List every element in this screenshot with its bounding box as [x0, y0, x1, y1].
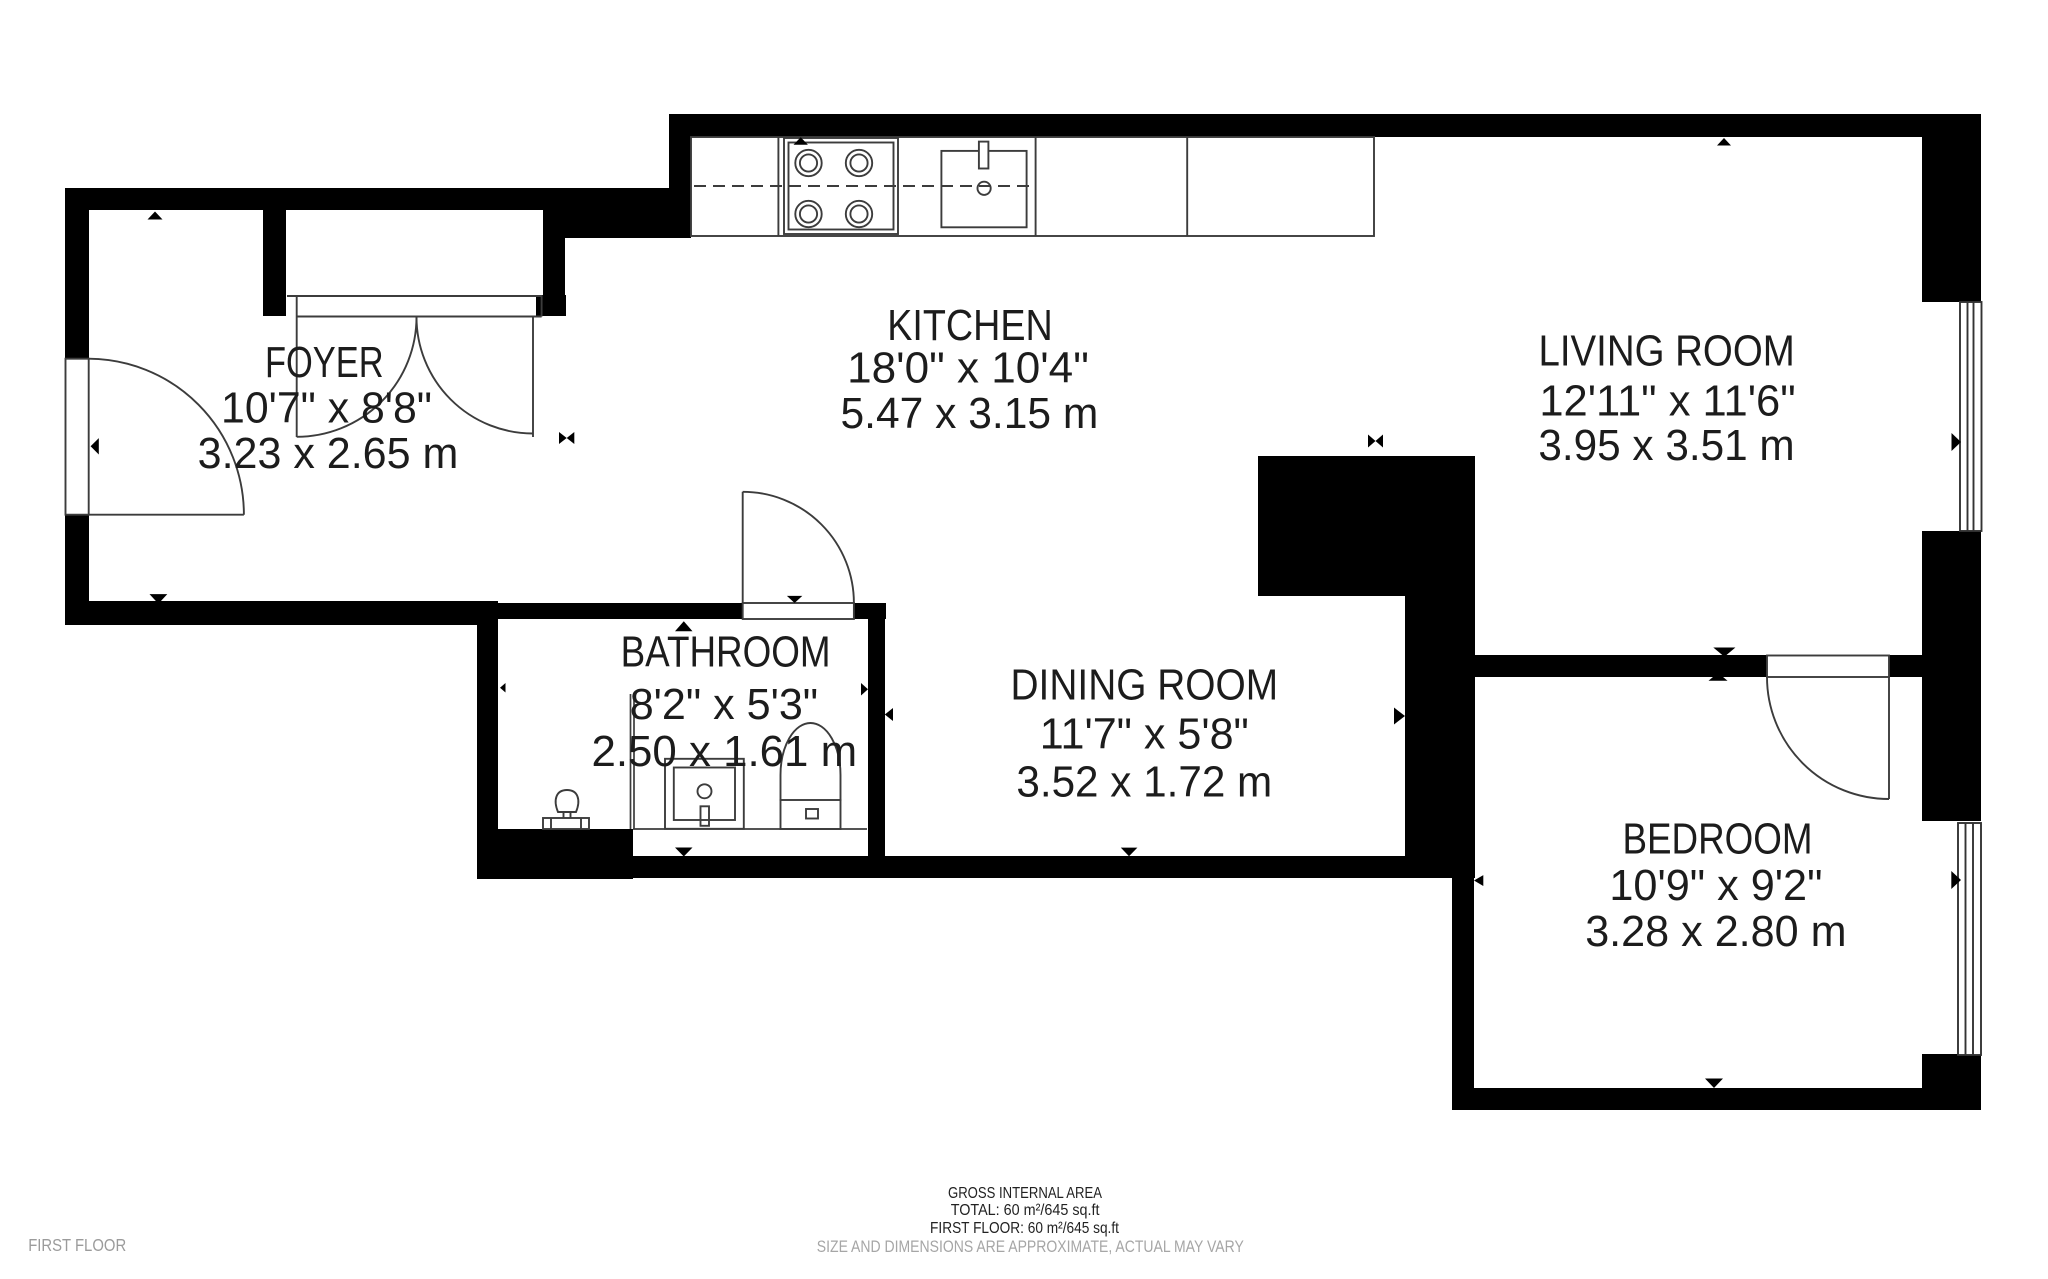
- svg-text:BEDROOM: BEDROOM: [1622, 815, 1812, 864]
- svg-text:3.95 x 3.51 m: 3.95 x 3.51 m: [1538, 421, 1794, 470]
- svg-text:3.52 x 1.72 m: 3.52 x 1.72 m: [1016, 757, 1272, 806]
- svg-text:FIRST FLOOR: FIRST FLOOR: [28, 1235, 126, 1255]
- svg-text:BATHROOM: BATHROOM: [621, 628, 831, 677]
- svg-text:18'0" x 10'4": 18'0" x 10'4": [847, 344, 1089, 393]
- svg-text:LIVING ROOM: LIVING ROOM: [1538, 326, 1794, 375]
- svg-text:FOYER: FOYER: [265, 338, 384, 387]
- svg-text:DINING ROOM: DINING ROOM: [1011, 661, 1279, 710]
- svg-text:10'7" x 8'8": 10'7" x 8'8": [221, 384, 432, 433]
- svg-text:FIRST FLOOR: 60 m²/645 sq.ft: FIRST FLOOR: 60 m²/645 sq.ft: [930, 1220, 1119, 1237]
- svg-text:TOTAL: 60 m²/645 sq.ft: TOTAL: 60 m²/645 sq.ft: [951, 1202, 1100, 1219]
- svg-text:2.50 x 1.61 m: 2.50 x 1.61 m: [592, 727, 858, 776]
- svg-text:10'9" x 9'2": 10'9" x 9'2": [1609, 861, 1822, 910]
- svg-text:SIZE AND DIMENSIONS ARE APPROX: SIZE AND DIMENSIONS ARE APPROXIMATE, ACT…: [817, 1237, 1244, 1256]
- svg-text:12'11" x 11'6": 12'11" x 11'6": [1539, 377, 1795, 426]
- svg-text:3.28 x 2.80 m: 3.28 x 2.80 m: [1585, 907, 1846, 956]
- svg-text:5.47 x 3.15 m: 5.47 x 3.15 m: [841, 389, 1099, 438]
- svg-text:8'2" x 5'3": 8'2" x 5'3": [630, 680, 818, 729]
- svg-text:GROSS INTERNAL AREA: GROSS INTERNAL AREA: [948, 1185, 1102, 1202]
- svg-text:11'7" x 5'8": 11'7" x 5'8": [1040, 709, 1249, 758]
- svg-text:3.23 x 2.65 m: 3.23 x 2.65 m: [198, 429, 459, 478]
